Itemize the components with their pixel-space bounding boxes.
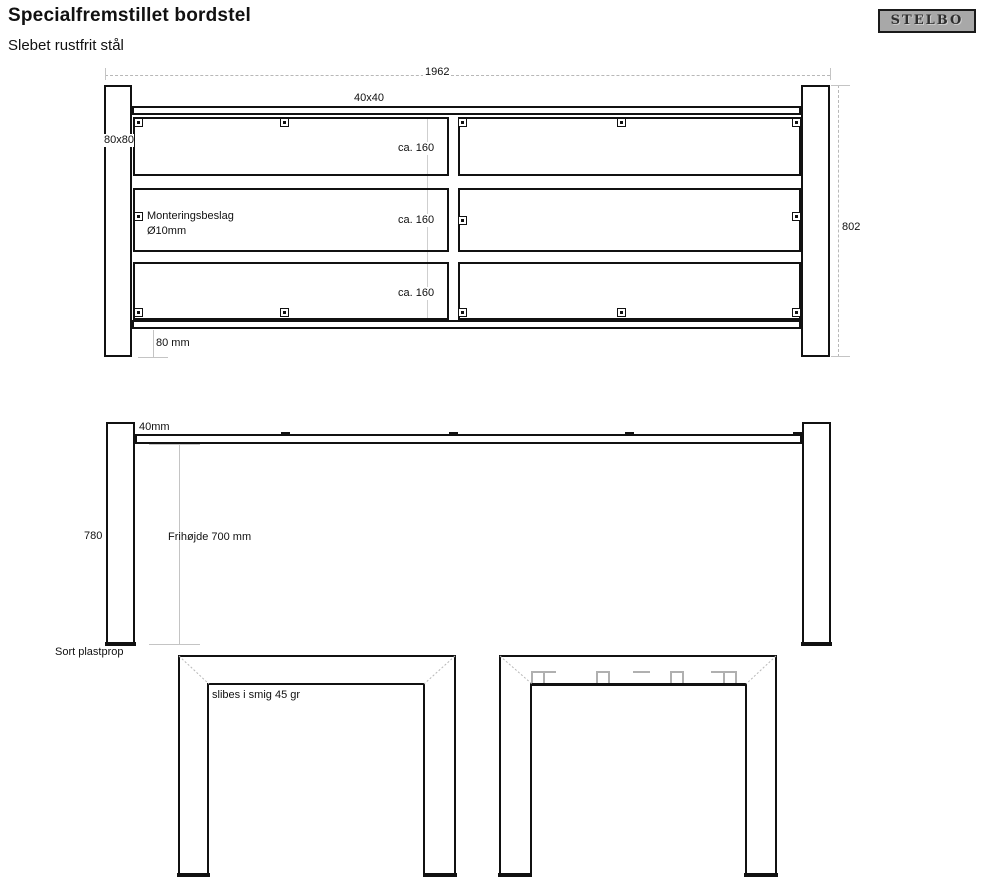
end-right-top-edge xyxy=(499,655,777,657)
clearance-tick-bottom xyxy=(149,644,200,645)
leg-height-label: 780 xyxy=(84,530,102,543)
end-right-outer-left xyxy=(499,655,501,877)
rail-height-label: 40mm xyxy=(139,421,170,434)
bracket-side-icon xyxy=(281,432,290,435)
foot-label: Sort plastprop xyxy=(55,646,123,659)
slat-box-row2-right xyxy=(458,188,801,252)
front-view-right-leg xyxy=(802,422,831,644)
end-right-inner-left xyxy=(530,683,532,877)
bracket-section-tab xyxy=(545,671,556,673)
width-dimension-tick-left xyxy=(105,68,106,80)
stelbo-logo-text: STELBO xyxy=(891,13,964,28)
mounting-bracket-icon xyxy=(134,212,143,221)
mounting-bracket-icon xyxy=(134,118,143,127)
bracket-note-line1: Monteringsbeslag xyxy=(147,210,234,223)
front-view-rail xyxy=(135,434,802,444)
front-view-left-leg xyxy=(106,422,135,644)
mounting-bracket-icon xyxy=(280,308,289,317)
miter-line-icon xyxy=(424,656,455,684)
plastic-foot-cap-right xyxy=(801,642,832,646)
mounting-bracket-icon xyxy=(617,118,626,127)
end-right-outer-right xyxy=(775,655,777,877)
mounting-bracket-icon xyxy=(458,308,467,317)
mounting-bracket-icon xyxy=(134,308,143,317)
mounting-bracket-icon xyxy=(617,308,626,317)
end-left-outer-right xyxy=(454,655,456,877)
width-dimension-label: 1962 xyxy=(423,66,451,79)
bracket-note-line2: Ø10mm xyxy=(147,225,186,238)
depth-dimension-label: 802 xyxy=(842,221,860,234)
bracket-side-icon xyxy=(793,432,802,435)
width-dimension-tick-right xyxy=(830,68,831,80)
spacing-label-1: ca. 160 xyxy=(396,142,436,155)
mounting-bracket-icon xyxy=(792,118,801,127)
drawing-canvas: Specialfremstillet bordstel Slebet rustf… xyxy=(0,0,982,891)
end-left-outer-left xyxy=(178,655,180,877)
bracket-section-icon xyxy=(723,671,737,683)
bracket-section-icon xyxy=(670,671,684,683)
bracket-section-icon xyxy=(531,671,545,683)
end-right-foot-cap-left xyxy=(498,873,532,877)
page-subtitle: Slebet rustfrit stål xyxy=(8,37,124,54)
end-left-foot-cap-left xyxy=(177,873,210,877)
top-view-bottom-rail xyxy=(132,320,801,329)
end-left-inner-left xyxy=(207,683,209,877)
end-right-inner-right xyxy=(745,683,747,877)
miter-label: slibes i smig 45 gr xyxy=(212,689,300,702)
end-left-inner-right xyxy=(423,683,425,877)
end-left-top-edge xyxy=(178,655,456,657)
depth-dimension-tick-bottom xyxy=(831,356,850,357)
mounting-bracket-icon xyxy=(280,118,289,127)
mounting-bracket-icon xyxy=(458,118,467,127)
end-left-rail-underside xyxy=(209,683,423,685)
top-view-left-leg xyxy=(104,85,132,357)
end-left-foot-cap-right xyxy=(424,873,457,877)
clearance-tick-top xyxy=(149,444,200,445)
width-dimension-line xyxy=(105,75,830,76)
stelbo-logo: STELBO xyxy=(878,9,976,33)
end-right-rail-underside xyxy=(531,683,747,686)
mounting-bracket-icon xyxy=(458,216,467,225)
edge-offset-label: 80 mm xyxy=(156,337,190,350)
bracket-side-icon xyxy=(449,432,458,435)
mounting-bracket-icon xyxy=(792,212,801,221)
rail-size-label: 40x40 xyxy=(354,92,384,105)
clearance-dimension-line xyxy=(179,444,180,645)
top-view-top-rail xyxy=(132,106,801,115)
spacing-label-3: ca. 160 xyxy=(396,287,436,300)
bracket-section-icon xyxy=(596,671,610,683)
slat-box-row1-right xyxy=(458,117,801,176)
spacing-label-2: ca. 160 xyxy=(396,214,436,227)
miter-line-icon xyxy=(746,656,776,684)
slat-box-row3-right xyxy=(458,262,801,320)
bracket-side-icon xyxy=(625,432,634,435)
depth-dimension-line xyxy=(838,85,839,357)
bracket-section-tab xyxy=(633,671,650,673)
bracket-section-tab xyxy=(711,671,723,673)
depth-dimension-tick-top xyxy=(831,85,850,86)
miter-line-icon xyxy=(500,656,532,684)
page-title: Specialfremstillet bordstel xyxy=(8,5,251,27)
offset-extension-line xyxy=(153,330,154,358)
end-right-foot-cap-right xyxy=(744,873,778,877)
mounting-bracket-icon xyxy=(792,308,801,317)
clearance-label: Frihøjde 700 mm xyxy=(168,531,251,544)
top-view-right-leg xyxy=(801,85,830,357)
leg-size-label: 80x80 xyxy=(104,134,134,147)
miter-line-icon xyxy=(179,656,209,684)
offset-tick-line xyxy=(138,357,168,358)
